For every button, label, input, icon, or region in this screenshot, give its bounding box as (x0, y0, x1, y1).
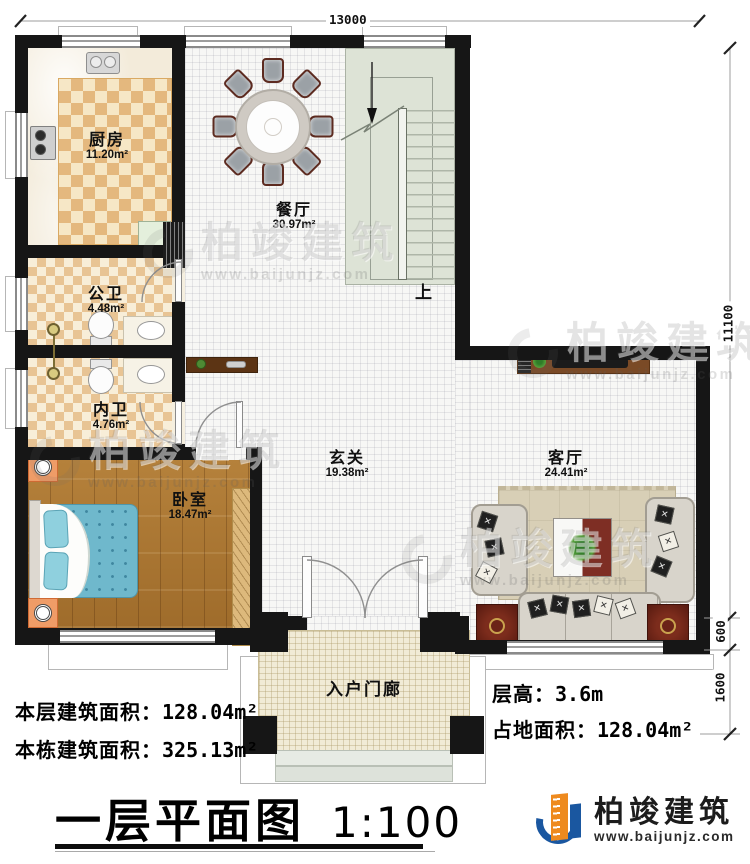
window-sill (48, 644, 228, 670)
stat-value: 325.13m² (162, 738, 258, 762)
room-name: 玄关 (326, 444, 369, 468)
stat-label: 层高： (492, 678, 555, 707)
room-area: 30.97m² (273, 219, 316, 231)
room-label-bedroom: 卧室 18.47m² (169, 486, 212, 521)
stair-treads (407, 110, 455, 280)
room-name: 餐厅 (273, 196, 316, 220)
window (364, 35, 445, 48)
door-leaf (175, 401, 182, 444)
nightstand-lamp (34, 458, 52, 476)
door-leaf (175, 259, 182, 302)
sofa-cushion (572, 599, 591, 618)
stat-value: 128.04m² (597, 718, 693, 742)
stat-value: 128.04m² (162, 700, 258, 724)
window (15, 278, 28, 330)
side-table-medallion (489, 618, 505, 634)
console-dish (226, 361, 246, 368)
dining-chair (262, 58, 284, 83)
drawing-scale: 1:100 (331, 798, 462, 847)
wall (15, 345, 185, 358)
window (15, 113, 28, 177)
company-website: www.baijunjz.com (594, 829, 735, 844)
room-area: 11.20m² (86, 149, 128, 161)
dimension-right-bay: 600 (713, 617, 728, 646)
dining-chair (309, 116, 334, 138)
towel-rail-end (47, 367, 60, 380)
title-block: 一层平面图 1:100 (55, 785, 462, 851)
company-logo: 柏竣建筑 www.baijunjz.com (536, 790, 735, 850)
room-label-private-bath: 内卫 4.76m² (93, 396, 129, 431)
stat-label: 本层建筑面积： (15, 696, 162, 725)
room-label-public-bath: 公卫 4.48m² (88, 280, 124, 315)
wall (455, 346, 710, 360)
room-name: 入户门廊 (326, 675, 402, 700)
room-label-living: 客厅 24.41m² (545, 444, 588, 479)
stat-storey-height: 层高： 3.6m (492, 678, 603, 707)
entry-door-leaf (302, 556, 312, 618)
room-name: 内卫 (93, 396, 129, 420)
dimension-top: 13000 (326, 12, 370, 27)
porch-step (275, 766, 453, 782)
stat-footprint-area: 占地面积： 128.04m² (492, 714, 693, 743)
table-plant (568, 533, 597, 562)
window-sill (452, 654, 714, 670)
stove-burner (35, 130, 46, 141)
wall (15, 447, 196, 460)
floor-plan-sheet: 厨房 11.20m² 餐厅 30.97m² 公卫 4.48m² 内卫 4.76m… (0, 0, 750, 864)
room-label-foyer: 玄关 19.38m² (326, 444, 369, 479)
room-name: 客厅 (545, 444, 588, 468)
logo-building-shape (551, 793, 568, 841)
stat-label: 占地面积： (492, 714, 597, 743)
porch-step (275, 750, 453, 766)
window (186, 35, 290, 48)
wall (172, 35, 185, 222)
dining-chair (213, 116, 238, 138)
stat-label: 本栋建筑面积： (15, 734, 162, 763)
stair-railing (398, 108, 407, 280)
room-area: 19.38m² (326, 467, 369, 479)
wall (696, 346, 710, 654)
toilet (88, 366, 114, 394)
title-underline (55, 844, 423, 849)
room-name: 卧室 (169, 486, 212, 510)
room-area: 18.47m² (169, 509, 212, 521)
wall (290, 35, 364, 48)
bed-pillow (43, 551, 69, 590)
room-area: 4.76m² (93, 419, 129, 431)
side-table-medallion (660, 618, 676, 634)
towel-rail-end (47, 323, 60, 336)
sofa-cushion (484, 537, 504, 557)
stat-value: 3.6m (555, 682, 603, 706)
porch-column (250, 612, 288, 652)
entry-door-leaf (418, 556, 428, 618)
room-name: 厨房 (86, 126, 128, 150)
window (507, 641, 663, 654)
door-leaf (236, 401, 243, 448)
wall (172, 302, 185, 402)
wall (15, 245, 185, 258)
wash-basin (137, 365, 165, 384)
room-name: 公卫 (88, 280, 124, 304)
window (60, 630, 215, 643)
porch-column (450, 716, 484, 754)
page-title: 一层平面图 (55, 785, 305, 851)
dimension-right-porch: 1600 (713, 669, 728, 705)
sofa-cushion (550, 595, 570, 615)
stair-up-label: 上 (415, 278, 432, 303)
logo-building-shape (570, 803, 581, 838)
foyer-floor-strip (455, 360, 470, 616)
company-logo-icon (536, 790, 586, 850)
window (62, 35, 140, 48)
sink-basin (104, 56, 116, 68)
window (15, 370, 28, 427)
stove-burner (35, 144, 46, 155)
company-name: 柏竣建筑 (594, 796, 735, 829)
room-label-kitchen: 厨房 11.20m² (86, 126, 128, 161)
room-area: 24.41m² (545, 467, 588, 479)
bed-pillow (43, 509, 69, 548)
stat-floor-area: 本层建筑面积： 128.04m² (15, 696, 258, 725)
wall (250, 447, 262, 628)
stat-building-area: 本栋建筑面积： 325.13m² (15, 734, 258, 763)
room-area: 4.48m² (88, 303, 124, 315)
lazy-susan (264, 118, 282, 136)
dimension-right-main: 11100 (720, 302, 735, 346)
porch-column (420, 612, 460, 652)
toilet (88, 311, 114, 339)
console-plant (196, 359, 206, 369)
wall (455, 35, 470, 360)
wash-basin (137, 321, 165, 340)
nightstand-lamp (34, 604, 52, 622)
sofa-cushion (654, 504, 674, 524)
sink-basin (90, 56, 102, 68)
room-label-porch: 入户门廊 (326, 675, 402, 700)
kitchen-rug (58, 78, 172, 245)
room-label-dining: 餐厅 30.97m² (273, 196, 316, 231)
title-underline-thin (55, 851, 435, 852)
